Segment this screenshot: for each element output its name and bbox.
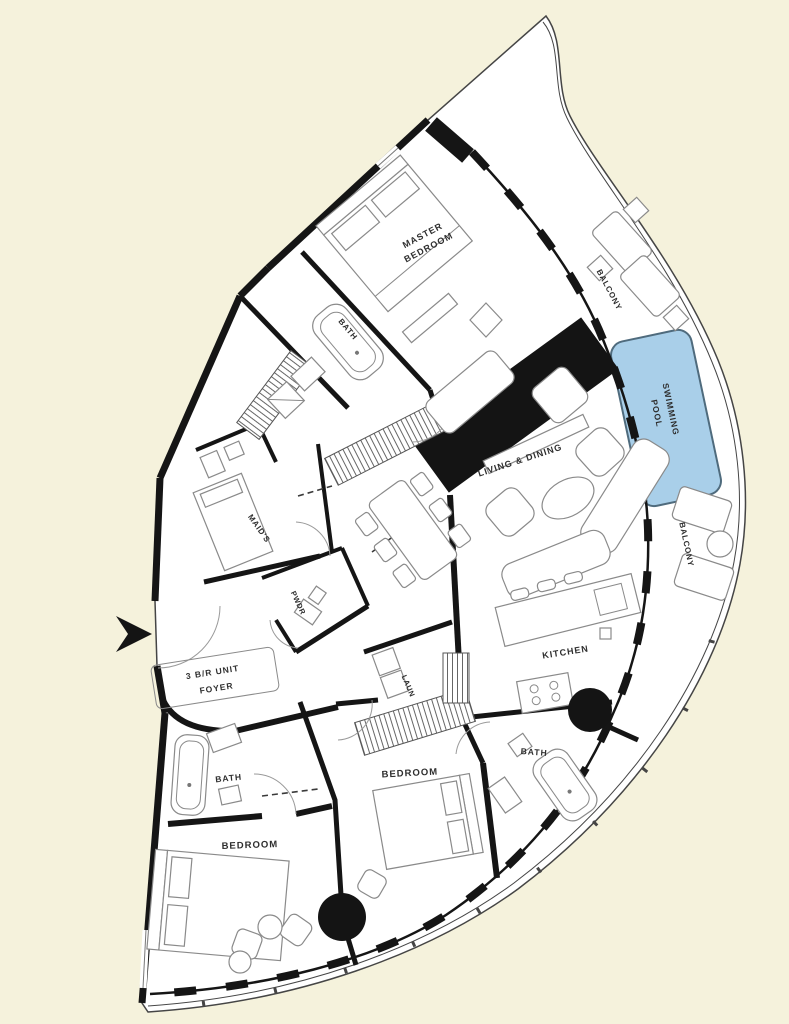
structural-column	[568, 688, 612, 732]
pillow	[169, 857, 192, 899]
bedroom3-bed	[373, 774, 483, 870]
structural-column	[318, 893, 366, 941]
room-label-bath3: BATH	[520, 746, 548, 758]
balcony-round-table	[707, 531, 733, 557]
room-label-bedroom2: BEDROOM	[221, 839, 278, 852]
bath2-tub	[170, 734, 209, 816]
floor-plan-canvas: MASTER BEDROOM BATH MAID'S PWDR 3 B/R UN…	[0, 0, 789, 1024]
bedroom2-table	[229, 951, 251, 973]
bedroom2-bed	[147, 849, 289, 960]
bedroom2-table	[258, 915, 282, 939]
floor-plan-drawing: MASTER BEDROOM BATH MAID'S PWDR 3 B/R UN…	[0, 0, 789, 1024]
tub-outer	[170, 734, 209, 816]
kitchen-appliance	[600, 628, 611, 639]
wall-entry-upper	[155, 478, 160, 601]
laundry-closet	[443, 653, 469, 703]
bath2-toilet	[219, 785, 242, 805]
pillow	[164, 905, 187, 947]
